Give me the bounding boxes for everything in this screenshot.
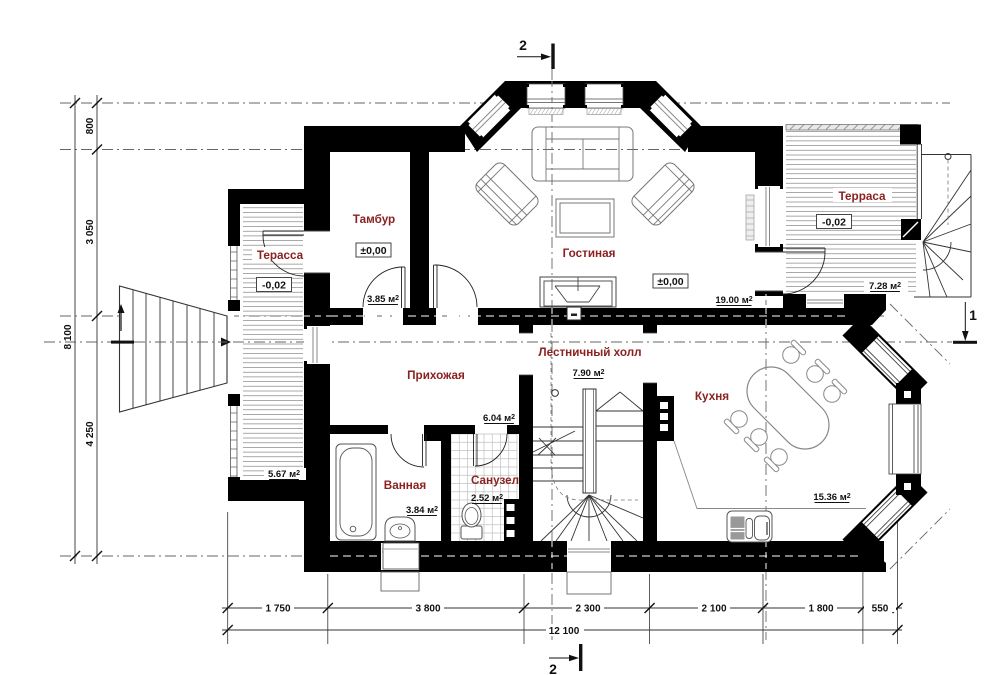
svg-text:3 800: 3 800 bbox=[415, 604, 440, 615]
svg-text:Прихожая: Прихожая bbox=[407, 369, 465, 382]
svg-text:800: 800 bbox=[85, 117, 96, 134]
svg-text:7.90 м2: 7.90 м2 bbox=[572, 368, 604, 379]
svg-text:6.04 м2: 6.04 м2 bbox=[483, 413, 515, 424]
svg-text:±0,00: ±0,00 bbox=[360, 245, 386, 257]
svg-text:2.52 м2: 2.52 м2 bbox=[471, 493, 503, 504]
svg-text:Терасса: Терасса bbox=[257, 249, 304, 262]
svg-text:-0,02: -0,02 bbox=[262, 280, 286, 292]
svg-text:8 100: 8 100 bbox=[63, 324, 74, 349]
svg-text:Санузел: Санузел bbox=[471, 474, 519, 487]
svg-text:2 300: 2 300 bbox=[575, 604, 600, 615]
svg-text:-0,02: -0,02 bbox=[822, 217, 846, 229]
svg-text:7.28 м2: 7.28 м2 bbox=[869, 281, 901, 292]
svg-text:3.85 м2: 3.85 м2 bbox=[367, 294, 399, 305]
svg-text:1: 1 bbox=[969, 307, 977, 323]
svg-text:Терраса: Терраса bbox=[839, 190, 886, 203]
svg-text:Лестничный холл: Лестничный холл bbox=[538, 346, 641, 359]
svg-text:550: 550 bbox=[872, 604, 889, 615]
svg-text:Кухня: Кухня bbox=[695, 390, 729, 403]
svg-text:Гостиная: Гостиная bbox=[563, 247, 616, 260]
svg-text:4 250: 4 250 bbox=[85, 421, 96, 446]
svg-text:12 100: 12 100 bbox=[549, 626, 580, 637]
svg-text:5.67 м2: 5.67 м2 bbox=[268, 469, 300, 480]
svg-text:Тамбур: Тамбур bbox=[353, 213, 395, 226]
svg-text:Ванная: Ванная bbox=[384, 479, 426, 492]
svg-text:1 800: 1 800 bbox=[808, 604, 833, 615]
svg-text:1 750: 1 750 bbox=[265, 604, 290, 615]
svg-text:2 100: 2 100 bbox=[701, 604, 726, 615]
svg-text:3.84 м2: 3.84 м2 bbox=[406, 505, 438, 516]
svg-text:15.36 м2: 15.36 м2 bbox=[813, 492, 850, 503]
svg-text:2: 2 bbox=[519, 37, 527, 53]
svg-text:3 050: 3 050 bbox=[85, 219, 96, 244]
svg-text:19.00 м2: 19.00 м2 bbox=[715, 295, 752, 306]
svg-text:±0,00: ±0,00 bbox=[657, 276, 683, 288]
svg-text:2: 2 bbox=[549, 661, 557, 675]
